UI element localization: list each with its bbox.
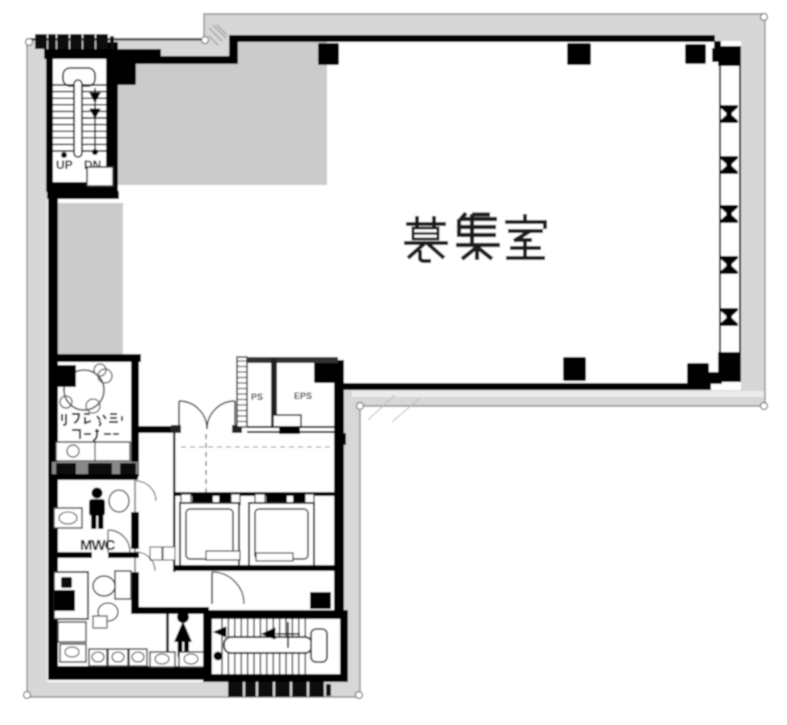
svg-text:UP: UP [56, 158, 73, 172]
svg-text:MWC: MWC [80, 537, 116, 554]
svg-text:PS: PS [251, 392, 263, 402]
svg-text:EPS: EPS [294, 391, 312, 401]
